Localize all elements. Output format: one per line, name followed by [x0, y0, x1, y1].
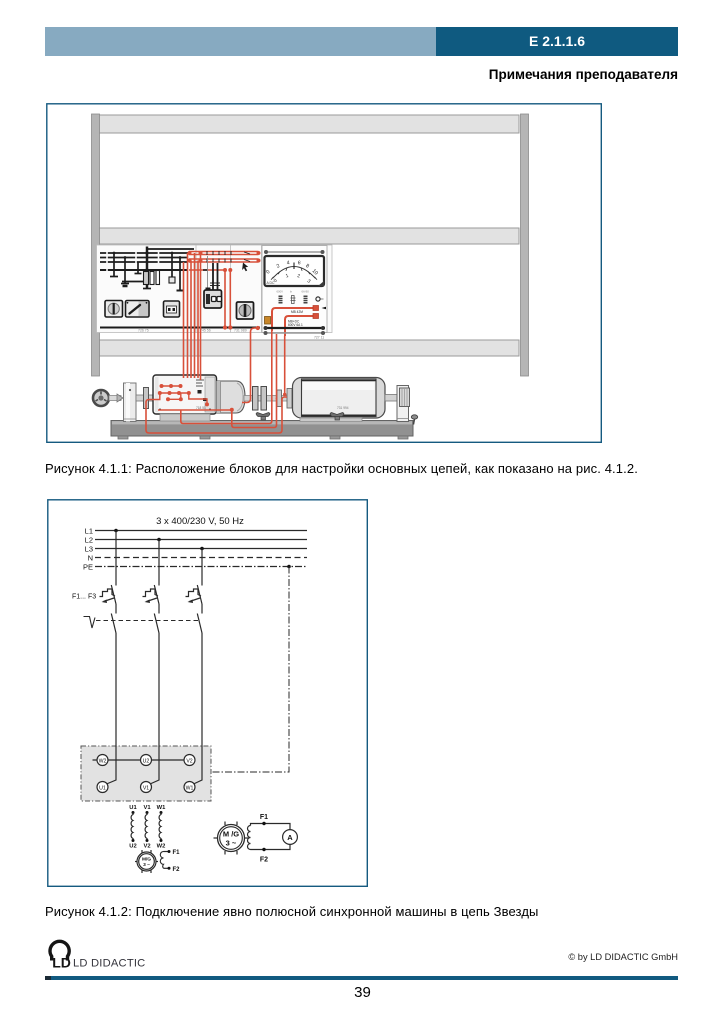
- svg-text:6A/60: 6A/60: [302, 290, 310, 294]
- svg-text:W2: W2: [99, 758, 107, 764]
- svg-text:3 ~: 3 ~: [143, 862, 150, 868]
- svg-text:N: N: [88, 554, 93, 563]
- svg-text:U1: U1: [99, 785, 106, 791]
- svg-text:M /G: M /G: [223, 830, 239, 839]
- svg-text:MB 42M: MB 42M: [291, 310, 303, 314]
- svg-text:3 ~: 3 ~: [226, 839, 237, 848]
- svg-text:F1: F1: [173, 850, 181, 856]
- svg-text:600V 6A 1: 600V 6A 1: [288, 323, 303, 327]
- svg-text:V1: V1: [143, 785, 149, 791]
- svg-text:V2: V2: [143, 844, 150, 850]
- svg-text:L2: L2: [85, 536, 93, 545]
- svg-text:726 75: 726 75: [138, 329, 149, 333]
- svg-text:W2: W2: [157, 844, 166, 850]
- svg-text:A: A: [287, 833, 293, 842]
- svg-text:U2: U2: [129, 844, 136, 850]
- svg-text:U2: U2: [143, 758, 150, 764]
- svg-text:L1: L1: [85, 527, 93, 536]
- svg-text:600V: 600V: [277, 290, 284, 294]
- svg-text:LD: LD: [52, 955, 71, 971]
- svg-text:3 x 400/230 V, 50 Hz: 3 x 400/230 V, 50 Hz: [156, 516, 244, 527]
- svg-text:F2: F2: [173, 867, 181, 873]
- svg-text:F2: F2: [260, 857, 268, 864]
- svg-text:W1: W1: [157, 805, 166, 811]
- svg-text:731 989: 731 989: [234, 329, 247, 333]
- svg-text:745 56: 745 56: [200, 329, 211, 333]
- svg-text:PE: PE: [83, 563, 93, 572]
- svg-text:731 994: 731 994: [337, 406, 349, 410]
- svg-text:M/G: M/G: [142, 857, 151, 863]
- svg-text:W1: W1: [186, 785, 194, 791]
- svg-text:U1: U1: [129, 805, 137, 811]
- svg-text:LD DIDACTIC: LD DIDACTIC: [73, 958, 145, 970]
- svg-text:F1: F1: [260, 814, 268, 821]
- svg-text:727 11: 727 11: [314, 336, 324, 340]
- svg-text:V2: V2: [186, 758, 192, 764]
- svg-text:L3: L3: [85, 545, 93, 554]
- svg-text:V1: V1: [143, 805, 151, 811]
- svg-text:A DC: A DC: [267, 281, 275, 285]
- svg-text:F1... F3: F1... F3: [72, 594, 96, 601]
